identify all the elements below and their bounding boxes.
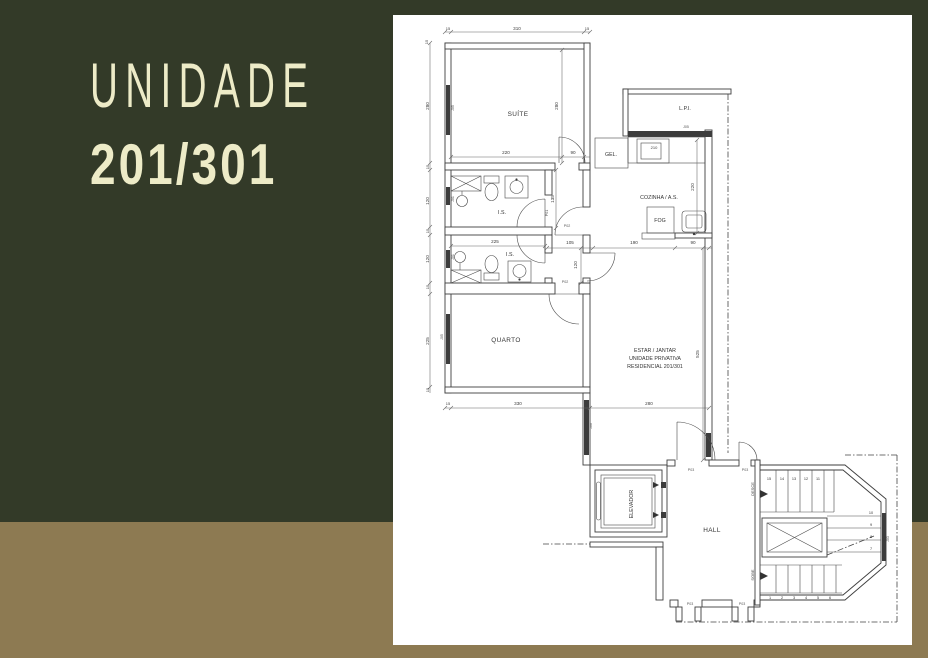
step-15: 15 (767, 477, 771, 481)
room-label-is2: I.S. (506, 252, 514, 258)
dim-estar-525: 525 (695, 350, 700, 358)
step-6: 6 (829, 596, 831, 600)
room-label-cozinha: COZINHA / A.S. (640, 195, 678, 201)
room-label-estar-1: ESTAR / JANTAR (634, 348, 676, 354)
dim-top-310: 310 (513, 26, 521, 31)
window-tag-j06: J06 (589, 423, 593, 429)
door-tag-p02-top: P02 (564, 224, 570, 228)
step-12: 12 (804, 477, 808, 481)
floor-plan-sheet: SUÍTE L.P.I. GEL. COZINHA / A.S. FOG I.S… (393, 15, 912, 645)
toilet-2 (485, 256, 498, 273)
stair-label-desce: DESCE (750, 482, 755, 496)
room-label-lpi: L.P.I. (679, 106, 691, 112)
step-13: 13 (792, 477, 796, 481)
door-tag-p01: P01 (545, 210, 549, 216)
room-label-estar-3: RESIDENCIAL 201/301 (627, 364, 683, 370)
windows-layer (446, 85, 712, 457)
dim-counter-210: 210 (651, 145, 658, 150)
step-1: 1 (769, 596, 771, 600)
step-2: 2 (781, 596, 783, 600)
dim-left-15-c: 15 (425, 284, 430, 289)
fixtures-layer (451, 137, 706, 283)
counter (628, 137, 705, 163)
dim-bottom-330: 330 (514, 401, 522, 406)
window-tag-j01-bath1: J01 (451, 196, 455, 202)
stair-label-sobe: SOBE (750, 569, 755, 580)
dim-bath2-225: 225 (491, 239, 499, 244)
dim-suite-280: 280 (554, 102, 559, 110)
toilet-1 (485, 184, 498, 201)
step-11: 11 (816, 477, 820, 481)
room-label-quarto: QUARTO (491, 337, 521, 344)
step-5: 5 (817, 596, 819, 600)
step-7: 7 (870, 547, 872, 551)
window-tag-j05-suite: J05 (451, 105, 455, 111)
dim-left-280: 280 (425, 102, 430, 110)
floor-plan-drawing: SUÍTE L.P.I. GEL. COZINHA / A.S. FOG I.S… (393, 15, 912, 645)
room-label-elevador: ELEVADOR (629, 490, 635, 519)
dim-left-15-b: 15 (425, 228, 430, 233)
door-tag-p03-stair-top: P03 (742, 468, 748, 472)
dimension-lines-layer (428, 30, 712, 462)
toilet-tank-2 (484, 273, 499, 280)
room-label-hall: HALL (703, 527, 721, 534)
dim-top-15-right: 15 (585, 26, 590, 31)
room-labels-layer: SUÍTE L.P.I. GEL. COZINHA / A.S. FOG I.S… (491, 106, 755, 581)
stairs-layer (760, 470, 881, 593)
dim-left-120-a: 120 (425, 197, 430, 205)
step-4: 4 (805, 596, 807, 600)
dim-bottom-280: 280 (645, 401, 653, 406)
laundry-tank (682, 211, 706, 232)
title-unidade: UNIDADE (90, 50, 315, 122)
door-tag-p03-hall-bottom: P03 (687, 602, 693, 606)
dim-left-120-b: 120 (425, 255, 430, 263)
dim-left-15-a: 15 (425, 164, 430, 169)
title-number: 201/301 (90, 130, 277, 198)
step-9: 9 (870, 523, 872, 527)
door-tag-p03-hall-top: P03 (688, 468, 694, 472)
window-tag-j05-kitchen: J05 (683, 125, 689, 129)
dim-mid-190: 190 (630, 240, 638, 245)
dim-mid-90: 90 (690, 240, 696, 245)
dim-bottom-15: 15 (446, 401, 451, 406)
doors-layer (517, 137, 757, 460)
dim-mid-105: 105 (566, 240, 574, 245)
door-tag-p03-stair-bottom: P03 (739, 602, 745, 606)
window-tag-j01-bath2: J01 (451, 254, 455, 260)
counterweight (597, 482, 601, 520)
dim-kitchen-220: 220 (690, 183, 695, 191)
step-3: 3 (793, 596, 795, 600)
room-label-suite: SUÍTE (508, 109, 529, 118)
dim-suite-90: 90 (570, 150, 576, 155)
unit-title: UNIDADE 201/301 (90, 50, 335, 98)
room-label-is1: I.S. (498, 210, 506, 216)
room-label-estar-2: UNIDADE PRIVATIVA (629, 356, 681, 362)
dim-suite-220: 220 (502, 150, 510, 155)
walls-layer (445, 43, 886, 621)
window-tag-j05-quarto: J05 (440, 334, 444, 340)
dim-mid-120: 120 (573, 261, 578, 269)
dim-top-15-left: 15 (446, 26, 451, 31)
dim-left-225: 225 (425, 337, 430, 345)
step-8: 8 (870, 535, 872, 539)
dim-left-15-wall: 15 (424, 39, 429, 44)
sink-outer (637, 139, 669, 163)
room-label-gel: GEL. (605, 152, 617, 158)
toilet-tank-1 (484, 176, 499, 183)
door-tag-p02-bottom: P02 (562, 280, 568, 284)
slide: UNIDADE 201/301 (0, 0, 928, 658)
window-tag-j03: J03 (886, 536, 890, 542)
dim-bath1-135: 135 (550, 195, 555, 203)
dim-left-15-d: 15 (425, 387, 430, 392)
stair-numbers-layer: 15 14 13 12 11 10 9 8 7 1 2 3 4 5 6 (767, 477, 873, 600)
step-14: 14 (780, 477, 784, 481)
room-label-fog: FOG (654, 218, 665, 224)
step-10: 10 (869, 511, 873, 515)
